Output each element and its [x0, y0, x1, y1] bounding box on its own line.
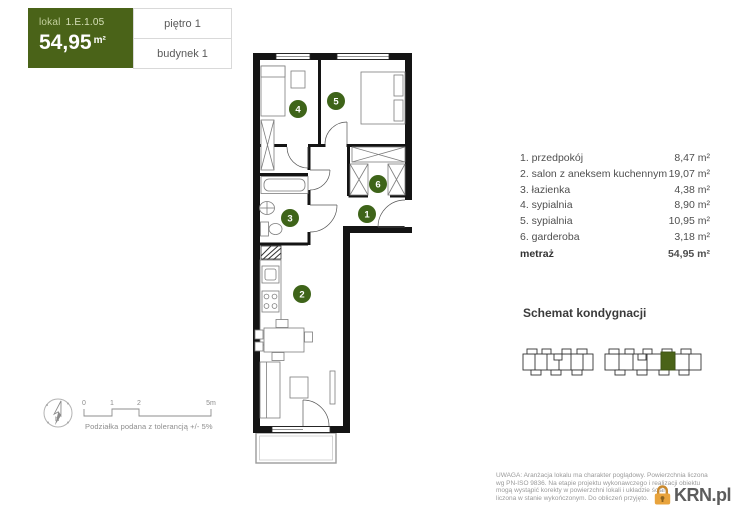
room-label: 2. salon z aneksem kuchennym: [520, 167, 667, 183]
room-label: 3. łazienka: [520, 183, 570, 199]
floor-schematic-diagram: [521, 344, 706, 382]
room-label: 1. przedpokój: [520, 151, 583, 167]
room-legend: 1. przedpokój 8,47 m² 2. salon z aneksem…: [520, 151, 710, 263]
room-badge-4: 4: [289, 100, 307, 118]
room-area: 10,95 m²: [669, 214, 710, 230]
total-label: metraż: [520, 247, 554, 263]
stove-icon: [262, 291, 279, 312]
svg-text:2: 2: [299, 290, 304, 301]
svg-text:1: 1: [364, 210, 370, 221]
total-area: 54,95 m²: [668, 247, 710, 263]
svg-text:1: 1: [110, 400, 114, 407]
building-2-outline: [605, 349, 701, 375]
room-area: 8,47 m²: [674, 151, 710, 167]
legend-row: 6. garderoba 3,18 m²: [520, 230, 710, 246]
svg-text:4: 4: [295, 105, 301, 116]
washbasin-icon: [260, 202, 275, 215]
unit-area-value: 54,95: [39, 31, 92, 54]
building-label: budynek 1: [157, 48, 208, 60]
room-label: 5. sypialnia: [520, 214, 573, 230]
shaft-hatched: [261, 246, 281, 261]
legend-row: 4. sypialnia 8,90 m²: [520, 198, 710, 214]
lokal-label: lokal: [39, 17, 61, 28]
entrance-opening: [404, 200, 412, 227]
kitchen-sink-icon: [262, 266, 279, 283]
disclaimer-line: UWAGA: Aranżacja lokalu ma charakter pog…: [496, 472, 722, 480]
unit-area: 54,95m²: [39, 31, 134, 55]
wardrobe-room6-left-icon: [350, 164, 368, 195]
room-badge-5: 5: [327, 92, 345, 110]
room-badge-1: 1: [358, 205, 376, 223]
floor-box: piętro 1: [133, 8, 232, 39]
tv-icon: [330, 371, 335, 404]
compass-north-label: N: [55, 417, 59, 423]
krn-logo[interactable]: KRN.pl: [652, 484, 731, 506]
room-label: 4. sypialnia: [520, 198, 573, 214]
unit-id-line: lokal1.E.1.05: [39, 17, 134, 28]
svg-text:5: 5: [333, 97, 339, 108]
wardrobe-room6-top-icon: [352, 147, 405, 162]
unit-area-unit: m²: [94, 35, 106, 46]
bed-room5-icon: [361, 72, 405, 124]
schematic-title: Schemat kondygnacji: [523, 306, 646, 320]
unit-summary-card: lokal1.E.1.05 54,95m²: [28, 8, 134, 68]
svg-text:0: 0: [82, 400, 86, 407]
balcony: [256, 433, 336, 463]
desk-room4-icon: [291, 71, 305, 88]
building-box: budynek 1: [133, 38, 232, 69]
highlighted-unit: [661, 352, 675, 370]
legend-row: 1. przedpokój 8,47 m²: [520, 151, 710, 167]
room-area: 4,38 m²: [674, 183, 710, 199]
coffee-table-icon: [290, 377, 308, 398]
room-badge-3: 3: [281, 209, 299, 227]
room-area: 8,90 m²: [674, 198, 710, 214]
legend-row: 2. salon z aneksem kuchennym 19,07 m²: [520, 167, 710, 183]
floor-label: piętro 1: [164, 18, 201, 30]
room-label: 6. garderoba: [520, 230, 580, 246]
svg-text:3: 3: [287, 214, 292, 225]
wardrobe-room6-right-icon: [388, 164, 405, 195]
legend-row: 5. sypialnia 10,95 m²: [520, 214, 710, 230]
room-area: 19,07 m²: [669, 167, 710, 183]
room-area: 3,18 m²: [674, 230, 710, 246]
svg-text:6: 6: [375, 180, 380, 191]
padlock-icon: [652, 484, 673, 506]
room-badge-6: 6: [369, 175, 387, 193]
floor-plan: 1 2 3 4 5 6: [235, 33, 431, 475]
floorplan-page: lokal1.E.1.05 54,95m² piętro 1 budynek 1: [0, 0, 740, 519]
svg-text:5m: 5m: [206, 400, 216, 407]
lokal-number: 1.E.1.05: [66, 17, 105, 28]
bed-room4-icon: [261, 66, 285, 116]
bathtub-icon: [261, 177, 308, 194]
krn-logo-text: KRN.pl: [674, 485, 731, 506]
wardrobe-room4-icon: [261, 120, 274, 170]
legend-total-row: metraż 54,95 m²: [520, 247, 710, 263]
compass-icon: N: [40, 396, 76, 436]
building-1-outline: [523, 349, 593, 375]
svg-text:2: 2: [137, 400, 141, 407]
legend-row: 3. łazienka 4,38 m²: [520, 183, 710, 199]
toilet-icon: [261, 222, 283, 236]
scale-caption: Podziałka podana z tolerancją +/- 5%: [85, 422, 213, 431]
sofa-icon: [260, 362, 280, 418]
room-badge-2: 2: [293, 285, 311, 303]
scale-bar: 0 1 2 5m: [80, 396, 220, 422]
